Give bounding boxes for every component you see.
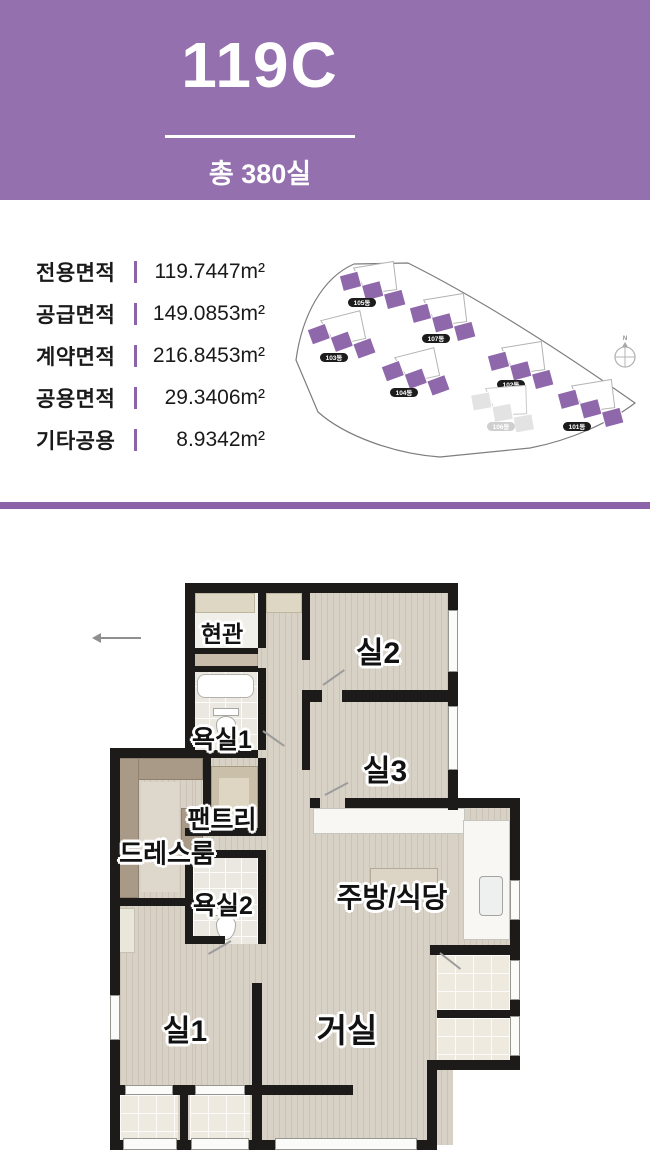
wall <box>258 758 266 830</box>
site-plan: 105동 103동 107동 <box>290 250 640 465</box>
wall <box>345 798 448 808</box>
wall <box>342 690 448 702</box>
entrance-arrow-line <box>99 637 141 639</box>
spec-divider <box>134 261 137 283</box>
building-label: 107동 <box>428 335 445 343</box>
building-block <box>557 389 579 409</box>
spec-divider <box>134 429 137 451</box>
wall <box>310 690 322 702</box>
spec-row-supply: 공급면적 149.0853m² <box>36 293 266 335</box>
wall <box>427 1060 437 1150</box>
entrance-arrow-icon <box>92 633 101 643</box>
window <box>510 960 520 1000</box>
spec-label: 공급면적 <box>36 299 132 329</box>
wall <box>252 983 262 1140</box>
building-label: 101동 <box>569 423 586 431</box>
building-block <box>487 351 509 371</box>
room-label-living-room: 거실 <box>317 1004 378 1052</box>
wall <box>180 1095 188 1140</box>
toilet-tank-icon <box>213 708 239 716</box>
room-label-pantry: 팬트리 <box>187 800 256 836</box>
section-divider-bar <box>0 502 650 509</box>
room-label-room2: 실2 <box>356 628 400 672</box>
dressroom-cabinet-left <box>117 758 139 898</box>
wall <box>110 748 195 758</box>
spec-value: 216.8453m² <box>147 344 265 368</box>
spec-value: 149.0853m² <box>147 302 265 326</box>
wall <box>302 690 310 770</box>
kitchen-sink-icon <box>479 876 503 916</box>
floor-balcony-bottom-left <box>120 1095 178 1140</box>
building-cluster <box>306 307 376 373</box>
building-cluster <box>380 344 450 410</box>
window <box>191 1138 249 1150</box>
unit-title: 119C <box>0 28 520 102</box>
window <box>125 1085 173 1095</box>
area-spec-list: 전용면적 119.7447m² 공급면적 149.0853m² 계약면적 216… <box>36 251 266 461</box>
building-block <box>531 369 553 389</box>
kitchen-counter-top <box>313 808 465 834</box>
wall <box>437 1060 520 1070</box>
building-block <box>383 289 405 309</box>
window <box>448 610 458 672</box>
building-label: 103동 <box>326 354 343 362</box>
header-divider-line <box>165 135 355 138</box>
building-block <box>339 271 361 291</box>
building-label: 106동 <box>493 423 510 431</box>
window <box>510 880 520 920</box>
floor-balcony-right-lower <box>437 1018 510 1060</box>
spec-row-contract: 계약면적 216.8453m² <box>36 335 266 377</box>
window <box>123 1138 177 1150</box>
window-living-room <box>275 1138 417 1150</box>
floor-balcony-bottom-right <box>190 1095 250 1140</box>
room-label-kitchen-dining: 주방/식당 <box>337 876 448 916</box>
room-label-entrance: 현관 <box>201 615 243 649</box>
room-label-bathroom2: 욕실2 <box>193 886 253 922</box>
building-block <box>492 403 513 422</box>
unit-header-content: 119C 총 380실 <box>0 0 520 200</box>
building-block <box>471 392 492 411</box>
spec-value: 8.9342m² <box>147 428 265 452</box>
spec-label: 계약면적 <box>36 341 132 371</box>
compass-icon: N <box>615 336 635 367</box>
building-label: 104동 <box>396 389 413 397</box>
site-plan-svg: 105동 103동 107동 <box>290 250 640 465</box>
unit-room-count: 총 380실 <box>0 152 520 191</box>
window <box>510 1016 520 1056</box>
hall-closet <box>266 593 302 613</box>
window <box>195 1085 245 1095</box>
wall <box>110 898 203 906</box>
wall <box>258 858 266 944</box>
room-label-bathroom1: 욕실1 <box>192 720 252 756</box>
unit-brochure-page: 119C 총 380실 전용면적 119.7447m² 공급면적 149.085… <box>0 0 650 1166</box>
building-label: 105동 <box>354 299 371 307</box>
spec-label: 기타공용 <box>36 425 132 455</box>
unit-header: 119C 총 380실 <box>0 0 650 200</box>
spec-label: 전용면적 <box>36 257 132 287</box>
spec-row-exclusive: 전용면적 119.7447m² <box>36 251 266 293</box>
building-block <box>409 303 431 323</box>
spec-value: 29.3406m² <box>147 386 265 410</box>
building-block <box>513 414 534 433</box>
wall <box>258 593 266 648</box>
entrance-closet <box>195 593 255 613</box>
bathtub-icon <box>197 674 254 698</box>
building-block <box>601 407 623 427</box>
floor-plan: 현관 실2 욕실1 실3 팬트리 드레스룸 욕실2 주방/식당 실1 거실 <box>95 580 535 1166</box>
wall <box>437 1010 510 1018</box>
room-label-room3: 실3 <box>363 746 407 790</box>
spec-divider <box>134 345 137 367</box>
wall <box>302 593 310 660</box>
window <box>110 995 120 1040</box>
window <box>448 706 458 770</box>
room-label-dressroom: 드레스룸 <box>119 834 215 871</box>
building-block <box>453 321 475 341</box>
spec-divider <box>134 387 137 409</box>
wall <box>185 666 258 672</box>
floor-balcony-right-upper <box>437 955 510 1010</box>
spec-value: 119.7447m² <box>147 260 265 284</box>
compass-north-label: N <box>623 336 627 342</box>
wall <box>185 583 458 593</box>
wall <box>310 798 320 808</box>
spec-divider <box>134 303 137 325</box>
room-label-room1: 실1 <box>163 1006 207 1050</box>
wall <box>258 668 266 750</box>
spec-row-other: 기타공용 8.9342m² <box>36 419 266 461</box>
spec-row-common: 공용면적 29.3406m² <box>36 377 266 419</box>
spec-label: 공용면적 <box>36 383 132 413</box>
wall <box>185 936 225 944</box>
